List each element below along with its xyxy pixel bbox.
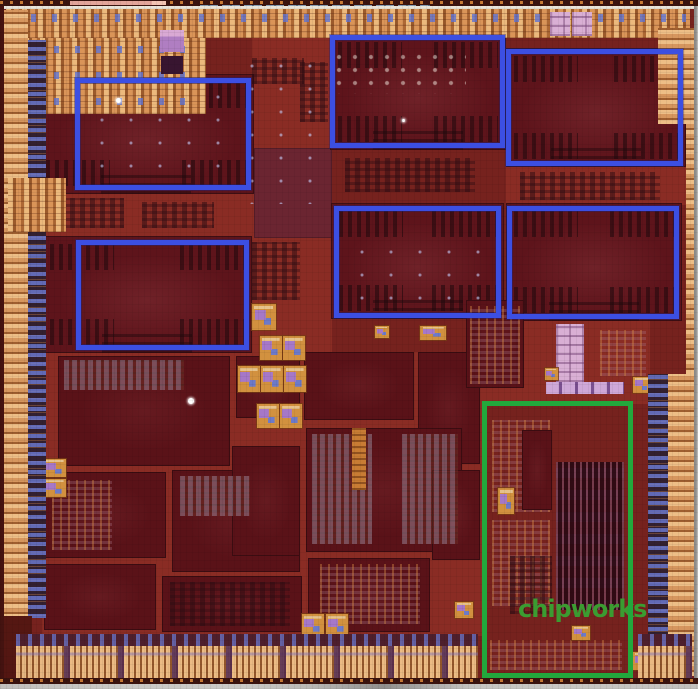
blue-box-top-mid — [330, 35, 505, 148]
green-box-bottom-right — [482, 401, 633, 678]
annotation-layer: chipworks — [0, 0, 698, 689]
blue-box-top-left — [75, 78, 251, 190]
blue-box-row2-left — [76, 240, 249, 350]
blue-box-row2-right — [507, 206, 679, 319]
die-photo: chipworks — [0, 0, 698, 689]
blue-box-top-right — [506, 49, 683, 166]
blue-box-row2-mid — [334, 206, 501, 318]
